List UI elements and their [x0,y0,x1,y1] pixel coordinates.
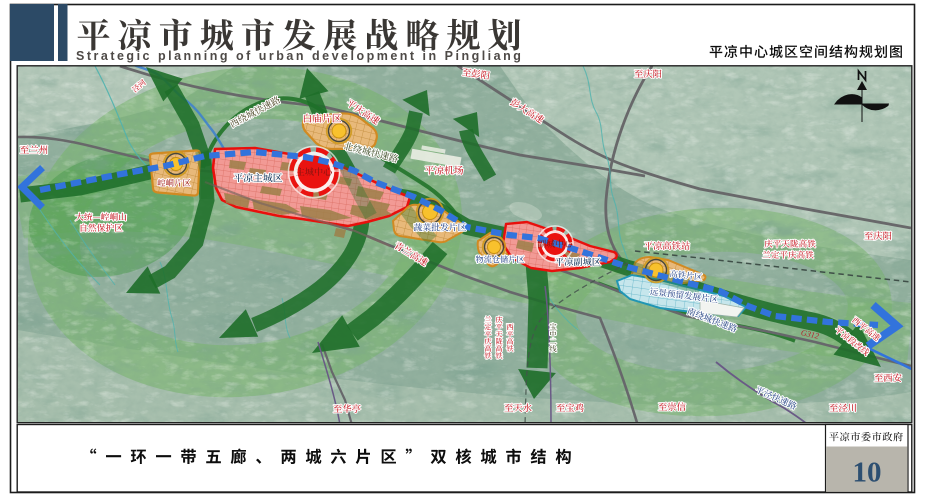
svg-text:10: 10 [853,457,882,489]
svg-text:Strategic planning of urban de: Strategic planning of urban development … [76,49,523,63]
